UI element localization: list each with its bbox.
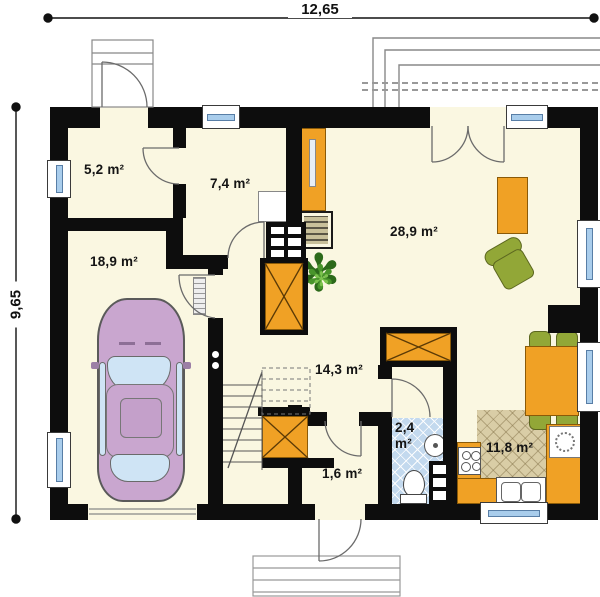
rear-steps bbox=[253, 556, 400, 596]
kitchen-sink bbox=[496, 477, 546, 504]
car-hood-vent bbox=[145, 342, 161, 345]
window bbox=[480, 502, 548, 524]
stair-landing bbox=[262, 416, 308, 458]
room-label-kitchen: 11,8 m² bbox=[486, 440, 533, 455]
car-side-window-right bbox=[176, 362, 183, 456]
window bbox=[577, 220, 600, 288]
room-label-garage: 18,9 m² bbox=[90, 254, 138, 269]
room-label-storage: 5,2 m² bbox=[84, 162, 124, 177]
tall-cabinet bbox=[300, 128, 326, 211]
wall-segment bbox=[580, 107, 598, 220]
window bbox=[47, 160, 71, 198]
wall-segment bbox=[50, 488, 68, 520]
coffee-table bbox=[497, 177, 528, 234]
wall-segment bbox=[50, 107, 68, 160]
wall-segment bbox=[258, 407, 310, 416]
wall-segment bbox=[148, 107, 202, 128]
plant-icon: ✻ bbox=[313, 270, 330, 290]
car-sunroof bbox=[120, 398, 162, 438]
wall-segment bbox=[378, 365, 392, 379]
wall-segment bbox=[50, 218, 183, 231]
room-label-stair-hall: 14,3 m² bbox=[315, 362, 363, 377]
shaft bbox=[265, 263, 303, 330]
wall-segment bbox=[197, 504, 315, 520]
radiator bbox=[193, 277, 206, 315]
wall-segment bbox=[378, 417, 392, 504]
toilet bbox=[403, 470, 425, 497]
toilet-tank bbox=[400, 494, 427, 504]
window bbox=[577, 342, 600, 412]
dimension-width-label: 12,65 bbox=[288, 1, 352, 18]
wall-segment bbox=[580, 412, 598, 520]
car-mirror-right bbox=[183, 362, 191, 369]
wall-segment bbox=[240, 107, 430, 128]
wall-segment bbox=[166, 255, 228, 269]
wall-segment bbox=[548, 305, 583, 333]
car-hood-vent bbox=[119, 342, 135, 345]
closet bbox=[258, 191, 288, 222]
dimension-height-label: 9,65 bbox=[8, 282, 25, 328]
car bbox=[97, 298, 185, 502]
wall-dot bbox=[212, 362, 219, 369]
room-label-vestibule: 1,6 m² bbox=[322, 466, 362, 481]
room-label-living: 28,9 m² bbox=[390, 224, 438, 239]
dining-table bbox=[525, 346, 579, 416]
kitchen-appliance bbox=[549, 426, 581, 458]
terrace-outline bbox=[362, 38, 600, 107]
wall-segment bbox=[173, 128, 186, 148]
wall-segment bbox=[359, 412, 392, 426]
car-side-window-left bbox=[99, 362, 106, 456]
entrance-steps bbox=[92, 40, 153, 107]
room-label-bathroom: 2,4 m² bbox=[395, 420, 431, 451]
wall-segment bbox=[173, 184, 186, 218]
wall-segment bbox=[50, 198, 68, 432]
chimney-block bbox=[266, 222, 306, 262]
wall-segment bbox=[208, 318, 223, 504]
wall-segment bbox=[208, 269, 223, 275]
window bbox=[202, 105, 240, 129]
shaft bbox=[386, 333, 451, 361]
floor-plan: ✻ ✻ ✻ bbox=[0, 0, 600, 597]
room-label-entry-hall: 7,4 m² bbox=[210, 176, 250, 191]
wall-dot bbox=[212, 351, 219, 358]
wall-segment bbox=[286, 107, 302, 225]
wall-segment bbox=[365, 504, 480, 520]
chimney-block bbox=[429, 461, 450, 504]
car-rear-window bbox=[110, 454, 170, 482]
window bbox=[47, 432, 71, 488]
stove bbox=[458, 447, 481, 475]
window bbox=[506, 105, 548, 129]
car-mirror-left bbox=[91, 362, 99, 369]
